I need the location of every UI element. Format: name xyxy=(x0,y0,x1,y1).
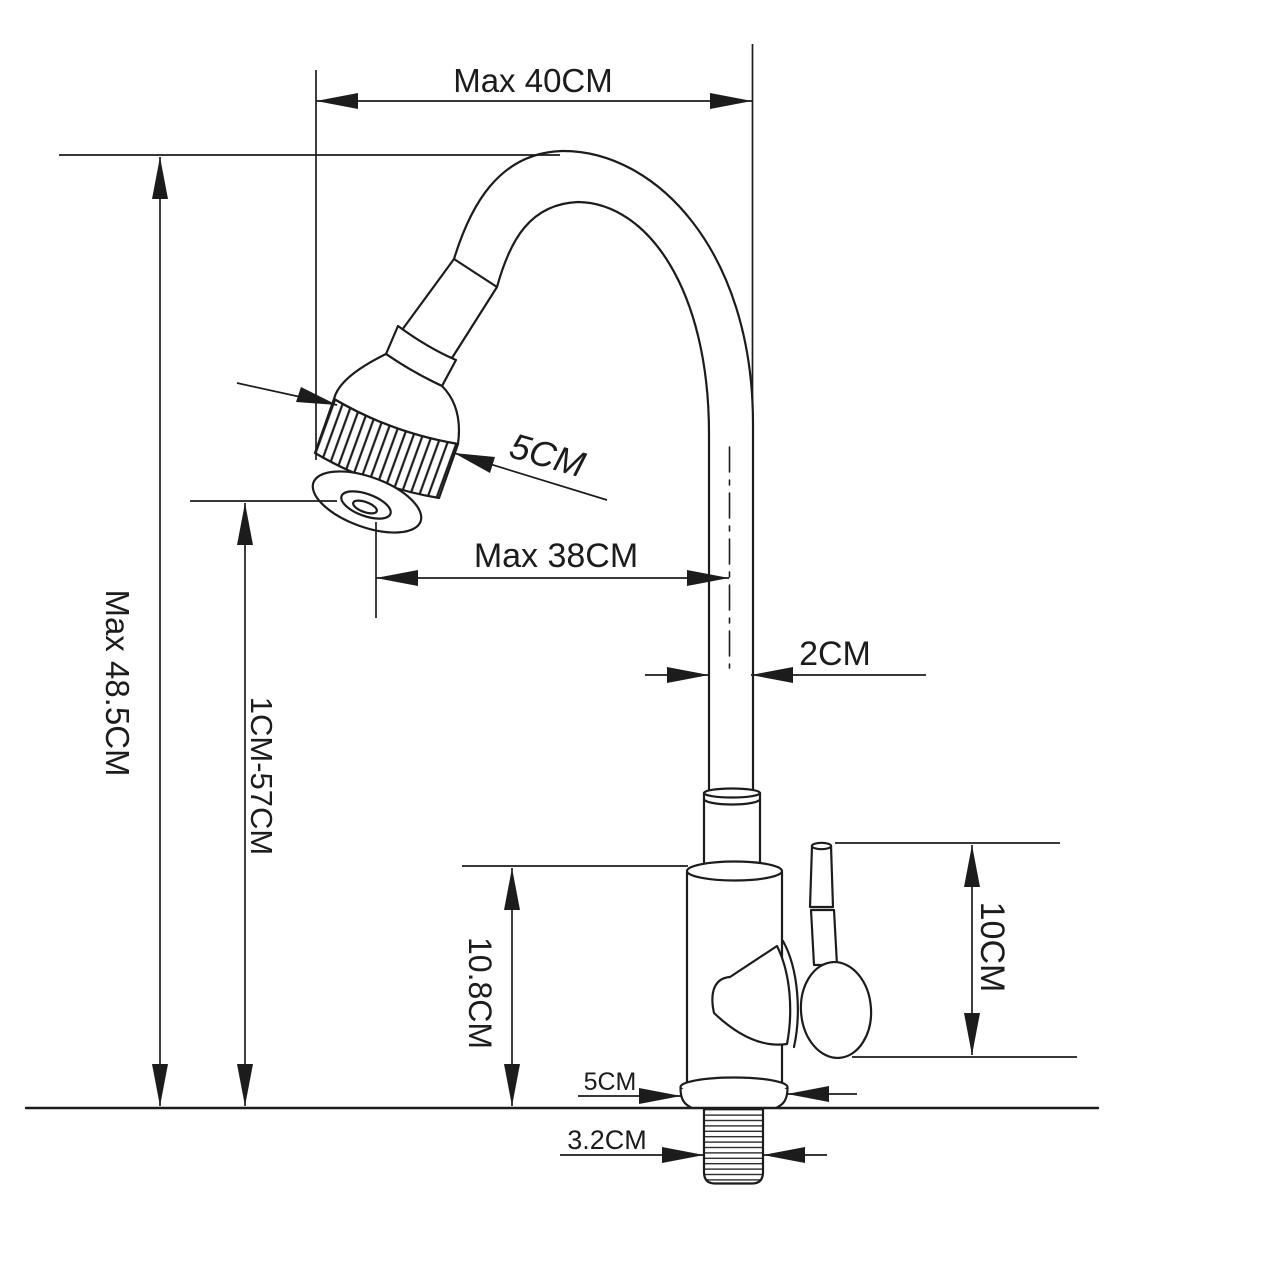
arrow-top-width-right xyxy=(710,93,752,109)
arrow-overall-height-top xyxy=(152,157,168,199)
label-top-width: Max 40CM xyxy=(453,62,613,99)
arrow-handle-height-top xyxy=(964,845,980,887)
label-overall-height: Max 48.5CM xyxy=(99,589,136,776)
arrow-top-width-left xyxy=(316,93,358,109)
label-outlet-height-range: 1CM-57CM xyxy=(244,697,279,855)
arrow-outlet-height-bottom xyxy=(237,1064,253,1106)
arrow-spout-reach-left xyxy=(376,570,418,586)
arrow-tube-diameter-right xyxy=(751,667,793,683)
arrow-handle-height-bottom xyxy=(964,1013,980,1055)
base-flange-skirt-fill xyxy=(681,1089,788,1108)
arrow-overall-height-bottom xyxy=(152,1064,168,1106)
label-thread-diameter: 3.2CM xyxy=(567,1125,647,1155)
coupling-top-rim xyxy=(704,789,760,798)
label-body-height: 10.8CM xyxy=(462,937,498,1049)
diagram-canvas: Max 40CM Max 48.5CM 1CM-57CM 5CM Max 38C… xyxy=(0,0,1280,1280)
arrow-base-width-left xyxy=(639,1088,681,1104)
thread-shank xyxy=(704,1109,763,1184)
arrow-sprayer-diameter-right xyxy=(454,453,495,473)
label-base-width: 5CM xyxy=(584,1068,637,1096)
dimension-lines xyxy=(59,44,1077,1155)
arrow-outlet-height-top xyxy=(237,503,253,545)
label-tube-diameter: 2CM xyxy=(799,635,871,673)
arrow-body-height-top xyxy=(504,868,520,910)
arrow-thread-diameter-left xyxy=(662,1147,704,1163)
label-spout-reach: Max 38CM xyxy=(474,537,638,575)
label-handle-height: 10CM xyxy=(973,902,1011,993)
handle-ball xyxy=(798,960,875,1061)
arrow-body-height-bottom xyxy=(504,1064,520,1106)
handle-lever-cap xyxy=(812,843,831,849)
dimension-labels: Max 40CM Max 48.5CM 1CM-57CM 5CM Max 38C… xyxy=(99,62,1011,1155)
handle-lever-upper xyxy=(810,846,833,907)
body-top-rim xyxy=(687,862,782,881)
faucet-dimension-diagram: Max 40CM Max 48.5CM 1CM-57CM 5CM Max 38C… xyxy=(0,0,1280,1280)
handle-lever-lower xyxy=(811,910,837,965)
arrow-thread-diameter-right xyxy=(763,1147,805,1163)
arrow-tube-diameter-left xyxy=(667,667,709,683)
arrow-base-width-right xyxy=(787,1086,829,1102)
faucet-outline xyxy=(26,151,1098,1184)
label-sprayer-diameter: 5CM xyxy=(505,425,589,485)
